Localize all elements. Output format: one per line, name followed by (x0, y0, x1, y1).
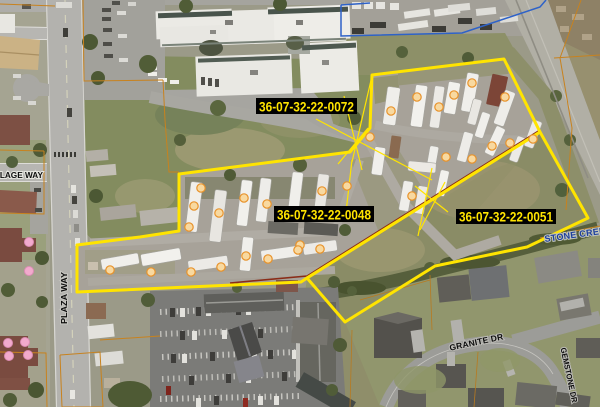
svg-text:VILLAGE WAY: VILLAGE WAY (0, 171, 44, 180)
svg-text:PLAZA WAY: PLAZA WAY (60, 271, 69, 324)
svg-text:36-07-32-22-0048: 36-07-32-22-0048 (277, 208, 371, 223)
svg-text:36-07-32-22-0051: 36-07-32-22-0051 (459, 210, 553, 225)
svg-text:36-07-32-22-0072: 36-07-32-22-0072 (259, 100, 354, 115)
